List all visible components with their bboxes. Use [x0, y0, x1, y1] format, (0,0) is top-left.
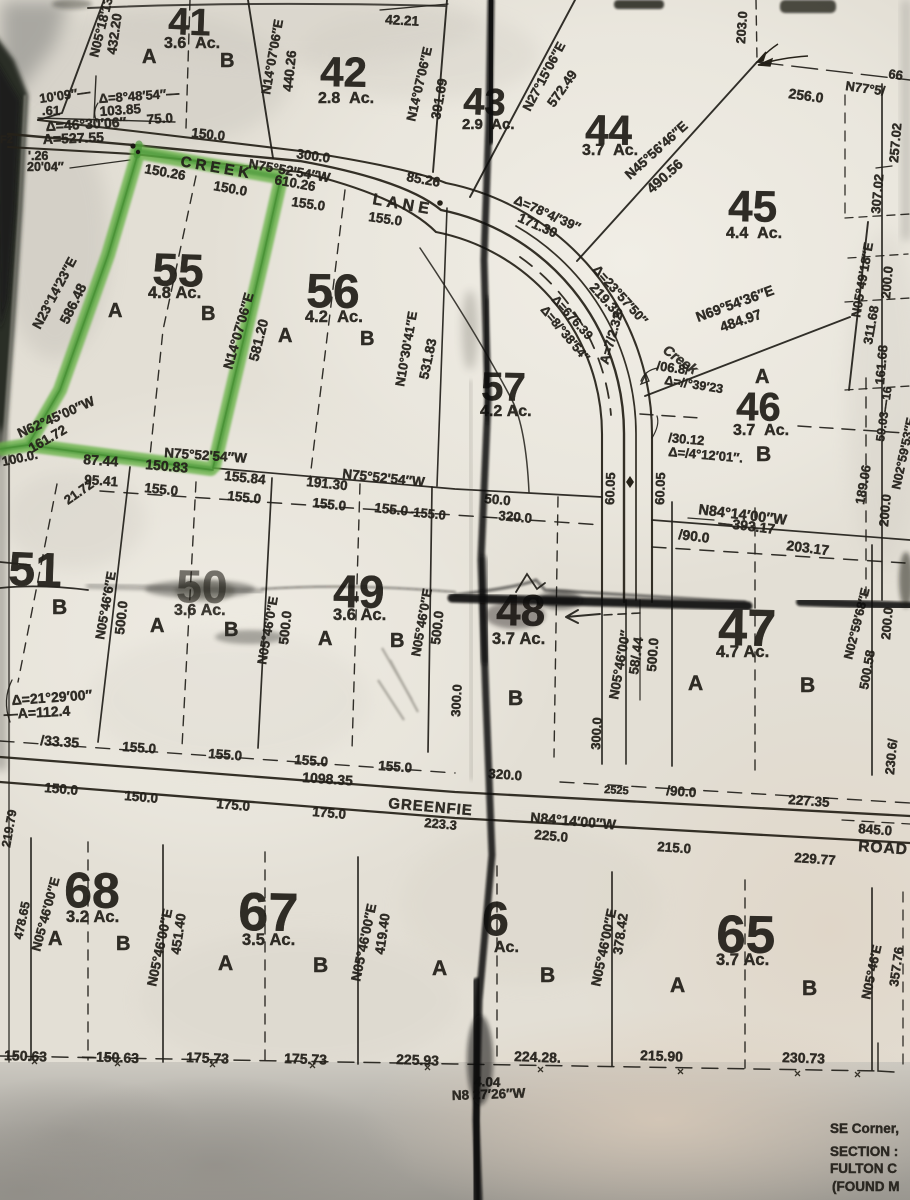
svg-text:50.0: 50.0: [484, 491, 511, 508]
svg-text:3.6 Ac.: 3.6 Ac.: [333, 606, 386, 624]
svg-text:175.0: 175.0: [312, 804, 347, 822]
svg-text:/90.0: /90.0: [666, 783, 697, 800]
svg-text:FULTON C: FULTON C: [830, 1161, 897, 1176]
svg-text:A: A: [432, 957, 447, 980]
svg-text:155.0: 155.0: [378, 758, 413, 775]
svg-text:3.7 Ac.: 3.7 Ac.: [733, 422, 789, 439]
svg-text:4.4 Ac.: 4.4 Ac.: [726, 225, 782, 242]
svg-text:203.0: 203.0: [733, 11, 750, 45]
svg-text:200.0: 200.0: [878, 607, 896, 641]
svg-text:300.0: 300.0: [588, 717, 605, 750]
svg-text:60.05: 60.05: [652, 472, 668, 505]
svg-text:66: 66: [888, 66, 904, 83]
svg-text:ROAD: ROAD: [858, 838, 909, 858]
svg-text:200.0: 200.0: [876, 494, 894, 528]
svg-text:B: B: [313, 954, 328, 977]
svg-text:A=527.55: A=527.55: [43, 129, 105, 147]
svg-text:87.44: 87.44: [83, 451, 119, 469]
svg-text:4.2 Ac.: 4.2 Ac.: [305, 308, 363, 326]
svg-text:A: A: [318, 628, 332, 650]
svg-text:SE Corner,: SE Corner,: [830, 1121, 899, 1136]
svg-text:175.0: 175.0: [216, 796, 251, 814]
svg-text:B: B: [116, 933, 130, 955]
svg-text:845.0: 845.0: [858, 821, 893, 838]
svg-text:A: A: [670, 974, 685, 997]
svg-text:A: A: [688, 672, 703, 695]
svg-text:60.05: 60.05: [602, 472, 618, 505]
svg-text:51: 51: [8, 543, 63, 598]
svg-text:320.0: 320.0: [488, 766, 523, 783]
svg-text:320.0: 320.0: [498, 508, 533, 526]
svg-text:2525: 2525: [604, 784, 629, 797]
svg-text:A: A: [48, 928, 62, 950]
svg-text:3.6 Ac.: 3.6 Ac.: [174, 602, 226, 619]
svg-text:230.6/: 230.6/: [882, 738, 900, 776]
svg-text:B: B: [360, 328, 374, 350]
svg-text:150.63: 150.63: [4, 1047, 48, 1064]
svg-text:42: 42: [320, 48, 368, 96]
svg-text:B: B: [220, 50, 234, 72]
svg-text:224.28.: 224.28.: [514, 1048, 561, 1066]
svg-text:A: A: [142, 46, 156, 68]
svg-text:215.90: 215.90: [640, 1047, 684, 1064]
svg-text:B: B: [201, 303, 215, 325]
svg-text:F2: F2: [0, 134, 13, 146]
svg-text:155.0: 155.0: [294, 752, 329, 769]
svg-text:SECTION :: SECTION :: [830, 1144, 898, 1159]
svg-text:20'04″: 20'04″: [27, 160, 64, 174]
svg-text:4.7 Ac.: 4.7 Ac.: [716, 643, 769, 661]
svg-text:155.0: 155.0: [122, 739, 157, 756]
svg-text:3.7 Ac.: 3.7 Ac.: [582, 142, 638, 159]
svg-text:B: B: [756, 443, 771, 466]
svg-text:B: B: [540, 964, 555, 987]
svg-text:(FOUND M: (FOUND M: [832, 1179, 900, 1194]
svg-text:4.8 Ac.: 4.8 Ac.: [148, 284, 201, 302]
svg-text:.61: .61: [42, 103, 60, 118]
svg-text:42.21: 42.21: [385, 12, 420, 29]
svg-text:230.73: 230.73: [782, 1049, 826, 1066]
svg-text:75.0: 75.0: [146, 110, 173, 127]
svg-text:Ac.: Ac.: [494, 939, 519, 956]
svg-text:215.0: 215.0: [657, 839, 692, 856]
svg-text:A: A: [218, 952, 233, 975]
svg-text:3.7 Ac.: 3.7 Ac.: [492, 630, 545, 648]
svg-text:150.0: 150.0: [44, 780, 79, 798]
svg-text:A: A: [150, 615, 164, 637]
svg-text:—150.63: —150.63: [82, 1048, 140, 1066]
svg-text:B: B: [390, 630, 404, 652]
svg-text:223.3: 223.3: [424, 815, 458, 833]
svg-text:/33.35: /33.35: [40, 732, 80, 751]
svg-text:3.6 Ac.: 3.6 Ac.: [164, 35, 220, 52]
svg-text:225.0: 225.0: [534, 827, 569, 845]
svg-text:200.0: 200.0: [878, 266, 896, 300]
svg-text:3.7 Ac.: 3.7 Ac.: [716, 951, 769, 969]
svg-text:175.73: 175.73: [284, 1050, 328, 1067]
svg-text:229.77: 229.77: [794, 850, 836, 868]
svg-text:300.0: 300.0: [448, 684, 465, 717]
svg-text:A: A: [278, 325, 292, 347]
svg-text:175.73: 175.73: [186, 1049, 230, 1066]
svg-text:B: B: [508, 687, 523, 710]
svg-text:225.93: 225.93: [396, 1051, 440, 1068]
svg-text:150.0: 150.0: [124, 788, 159, 806]
svg-text:3.2 Ac.: 3.2 Ac.: [66, 908, 119, 926]
svg-text:500.0: 500.0: [644, 637, 661, 672]
svg-text:155.0: 155.0: [208, 746, 243, 763]
svg-text:A: A: [108, 300, 122, 322]
svg-text:227.35: 227.35: [788, 792, 831, 810]
svg-text:B: B: [800, 674, 815, 697]
svg-text:B: B: [802, 977, 817, 1000]
svg-text:2.8 Ac.: 2.8 Ac.: [318, 90, 374, 107]
svg-text:3.5 Ac.: 3.5 Ac.: [242, 931, 295, 949]
svg-text:B: B: [52, 596, 67, 619]
